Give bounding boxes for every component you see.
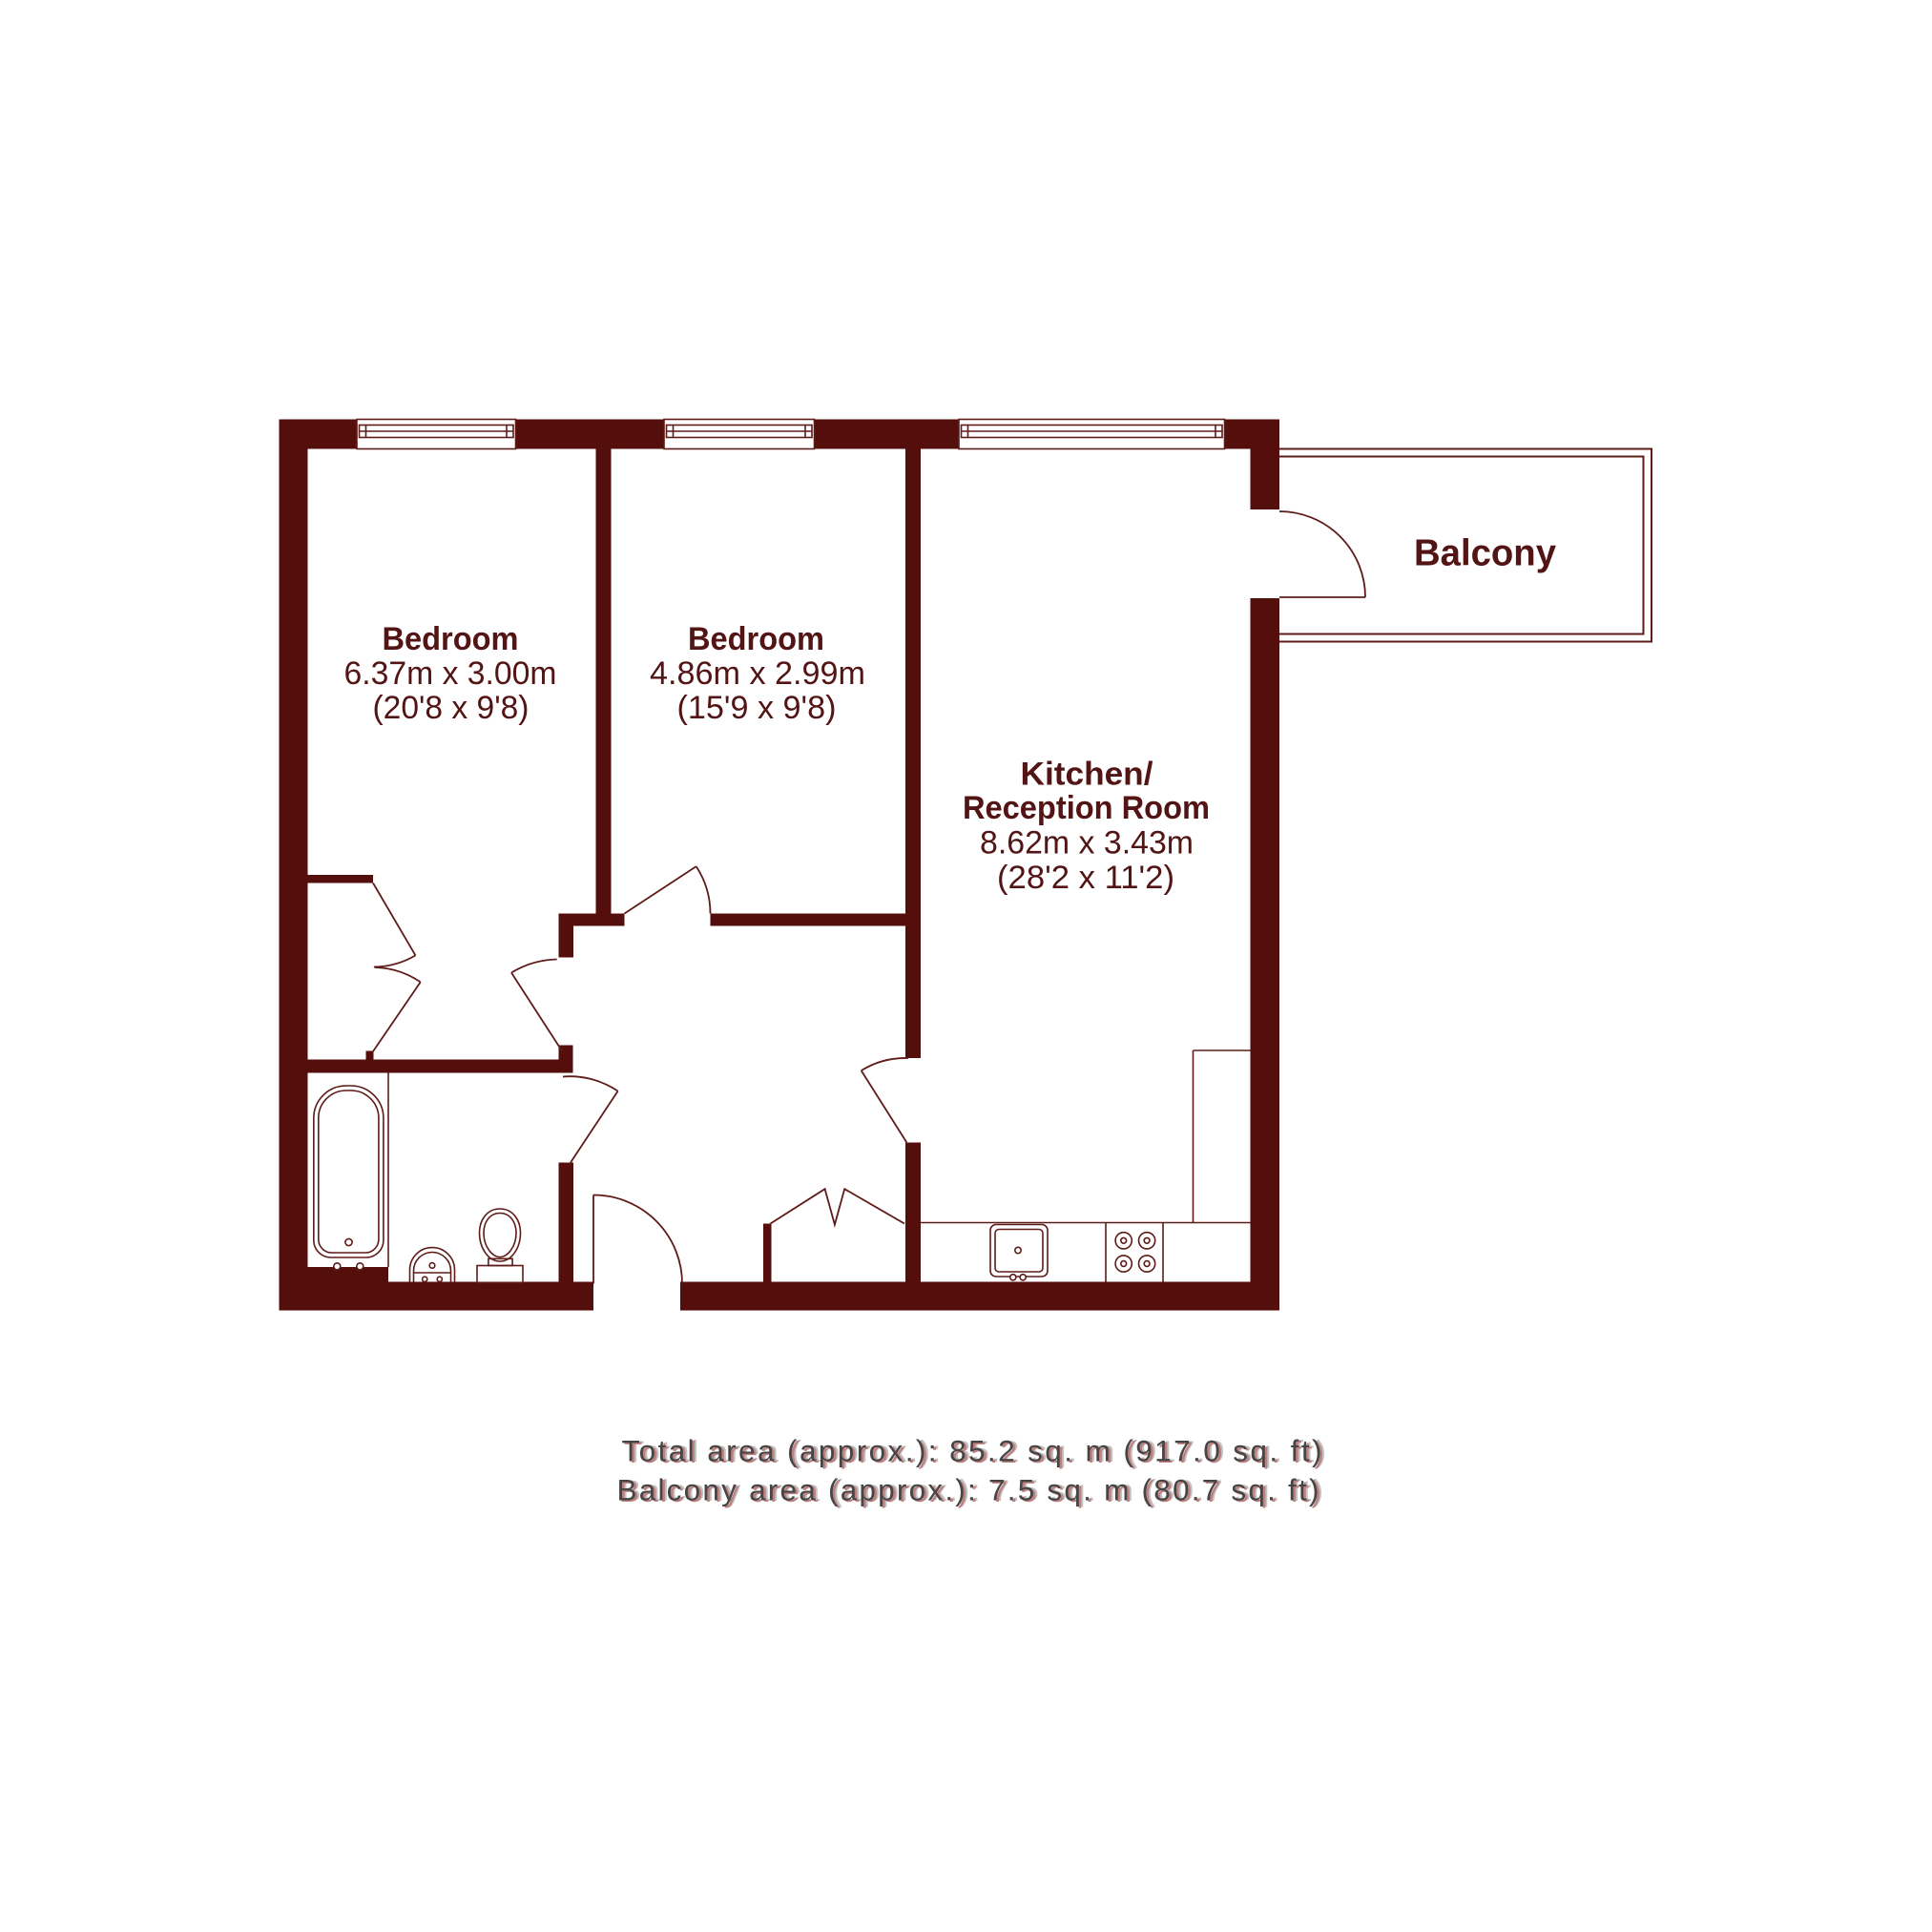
svg-text:Reception Room: Reception Room: [963, 790, 1210, 826]
svg-text:(28'2 x 11'2): (28'2 x 11'2): [997, 860, 1174, 896]
svg-text:8.62m x 3.43m: 8.62m x 3.43m: [980, 825, 1194, 862]
svg-text:Kitchen/: Kitchen/: [1021, 757, 1154, 793]
svg-text:4.86m x 2.99m: 4.86m x 2.99m: [650, 655, 865, 692]
svg-text:(15'9 x 9'8): (15'9 x 9'8): [677, 690, 837, 726]
svg-text:Total area (approx.): 85.2 sq.: Total area (approx.): 85.2 sq. m (917.0 …: [622, 1434, 1322, 1468]
svg-text:6.37m x 3.00m: 6.37m x 3.00m: [344, 655, 557, 692]
svg-text:Balcony: Balcony: [1414, 533, 1556, 574]
svg-text:(20'8 x 9'8): (20'8 x 9'8): [373, 690, 530, 726]
svg-text:Bedroom: Bedroom: [383, 621, 519, 657]
svg-text:Balcony area (approx.): 7.5 sq: Balcony area (approx.): 7.5 sq. m (80.7 …: [617, 1473, 1319, 1507]
svg-text:Bedroom: Bedroom: [688, 621, 824, 657]
